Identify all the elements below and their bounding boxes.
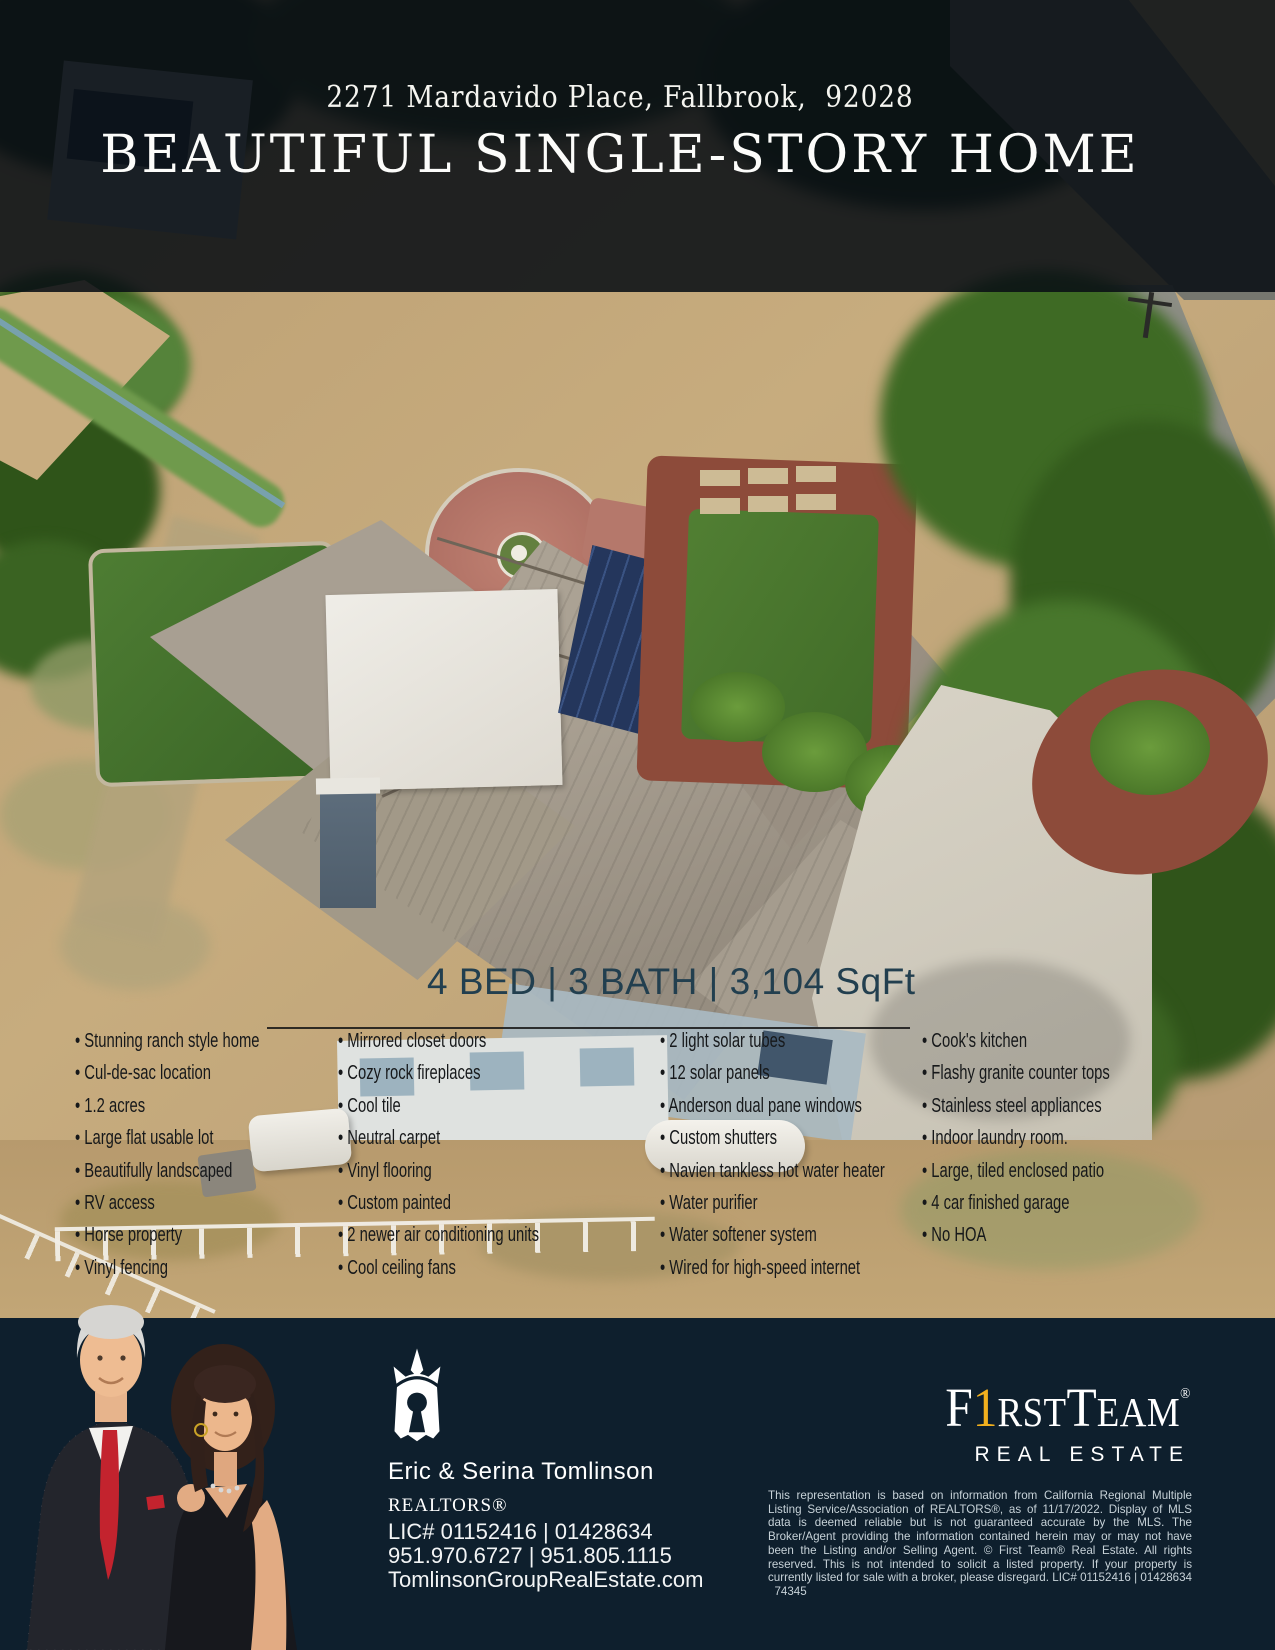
feature-item: RV access bbox=[75, 1187, 260, 1219]
feature-item: Cook's kitchen bbox=[922, 1025, 1110, 1057]
agent-phones: 951.970.6727 | 951.805.1115 bbox=[388, 1544, 703, 1567]
feature-item: Horse property bbox=[75, 1219, 260, 1251]
first-team-wordmark: F1RSTTEAM® bbox=[945, 1376, 1190, 1439]
keyhole-castle-logo bbox=[390, 1348, 444, 1448]
feature-column-3: 2 light solar tubes 12 solar panels Ande… bbox=[660, 1025, 964, 1284]
feature-item: Large flat usable lot bbox=[75, 1122, 260, 1154]
feature-item: Neutral carpet bbox=[338, 1122, 539, 1154]
feature-column-2: Mirrored closet doors Cozy rock fireplac… bbox=[338, 1025, 610, 1284]
brand-letters-eam: EAM bbox=[1096, 1389, 1179, 1435]
feature-item: 2 light solar tubes bbox=[660, 1025, 885, 1057]
aerial-fountain-center bbox=[511, 545, 527, 561]
feature-item: Water purifier bbox=[660, 1187, 885, 1219]
flyer-headline: BEAUTIFUL SINGLE-STORY HOME bbox=[0, 125, 1240, 185]
property-address: 2271 Mardavido Place, Fallbrook, 92028 bbox=[74, 80, 1165, 115]
feature-item: Indoor laundry room. bbox=[922, 1122, 1110, 1154]
feature-item: Navien tankless hot water heater bbox=[660, 1155, 885, 1187]
feature-item: 4 car finished garage bbox=[922, 1187, 1110, 1219]
brand-letters-rst: RST bbox=[997, 1389, 1066, 1435]
flyer-page: 2271 Mardavido Place, Fallbrook, 92028 B… bbox=[0, 0, 1275, 1650]
agent-contact-block: Eric & Serina Tomlinson REALTORS® LIC# 0… bbox=[388, 1458, 703, 1591]
bed-bath-sqft: 4 BED | 3 BATH | 3,104 SqFt bbox=[427, 961, 916, 1003]
agent-license: LIC# 01152416 | 01428634 bbox=[388, 1520, 703, 1543]
brand-letter-t: T bbox=[1066, 1377, 1096, 1438]
feature-item: Cul-de-sac location bbox=[75, 1057, 260, 1089]
feature-column-1: Stunning ranch style home Cul-de-sac loc… bbox=[75, 1025, 324, 1284]
feature-item: Stunning ranch style home bbox=[75, 1025, 260, 1057]
feature-item: Large, tiled enclosed patio bbox=[922, 1155, 1110, 1187]
brand-subtitle: REAL ESTATE bbox=[918, 1443, 1190, 1467]
feature-item: Cool ceiling fans bbox=[338, 1252, 539, 1284]
feature-item: Cozy rock fireplaces bbox=[338, 1057, 539, 1089]
feature-item: Anderson dual pane windows bbox=[660, 1090, 885, 1122]
mls-disclaimer: This representation is based on informat… bbox=[768, 1489, 1192, 1599]
feature-item: Flashy granite counter tops bbox=[922, 1057, 1110, 1089]
feature-item: 1.2 acres bbox=[75, 1090, 260, 1122]
aerial-flat-roof bbox=[325, 589, 562, 791]
aerial-garden-bed bbox=[700, 470, 740, 486]
feature-item: Stainless steel appliances bbox=[922, 1090, 1110, 1122]
first-team-brand: F1RSTTEAM® REAL ESTATE bbox=[918, 1376, 1190, 1467]
aerial-chimney-cap bbox=[316, 777, 380, 794]
brand-letter-f: F bbox=[945, 1377, 973, 1438]
feature-item: 2 newer air conditioning units bbox=[338, 1219, 539, 1251]
aerial-garden-bed bbox=[796, 494, 836, 510]
aerial-garden-bed bbox=[748, 468, 788, 484]
feature-item: 12 solar panels bbox=[660, 1057, 885, 1089]
feature-item: Mirrored closet doors bbox=[338, 1025, 539, 1057]
aerial-palm bbox=[1090, 700, 1210, 795]
registered-mark: ® bbox=[1180, 1386, 1190, 1402]
feature-item: Water softener system bbox=[660, 1219, 885, 1251]
agent-website-link[interactable]: TomlinsonGroupRealEstate.com bbox=[388, 1568, 703, 1591]
feature-item: No HOA bbox=[922, 1219, 1110, 1251]
feature-item: Custom painted bbox=[338, 1187, 539, 1219]
feature-item: Cool tile bbox=[338, 1090, 539, 1122]
aerial-chimney bbox=[320, 790, 376, 908]
feature-item: Wired for high-speed internet bbox=[660, 1252, 885, 1284]
agent-names: Eric & Serina Tomlinson bbox=[388, 1458, 703, 1486]
feature-column-4: Cook's kitchen Flashy granite counter to… bbox=[922, 1025, 1176, 1252]
aerial-garden-bed bbox=[700, 498, 740, 514]
aerial-garden-bed bbox=[796, 466, 836, 482]
agents-photo bbox=[15, 1278, 335, 1650]
feature-item: Vinyl flooring bbox=[338, 1155, 539, 1187]
aerial-garden-bed bbox=[748, 496, 788, 512]
banner: 2271 Mardavido Place, Fallbrook, 92028 B… bbox=[0, 80, 1240, 185]
agent-title: REALTORS® bbox=[388, 1495, 703, 1517]
feature-item: Beautifully landscaped bbox=[75, 1155, 260, 1187]
brand-gold-one: 1 bbox=[972, 1377, 997, 1438]
feature-item: Custom shutters bbox=[660, 1122, 885, 1154]
